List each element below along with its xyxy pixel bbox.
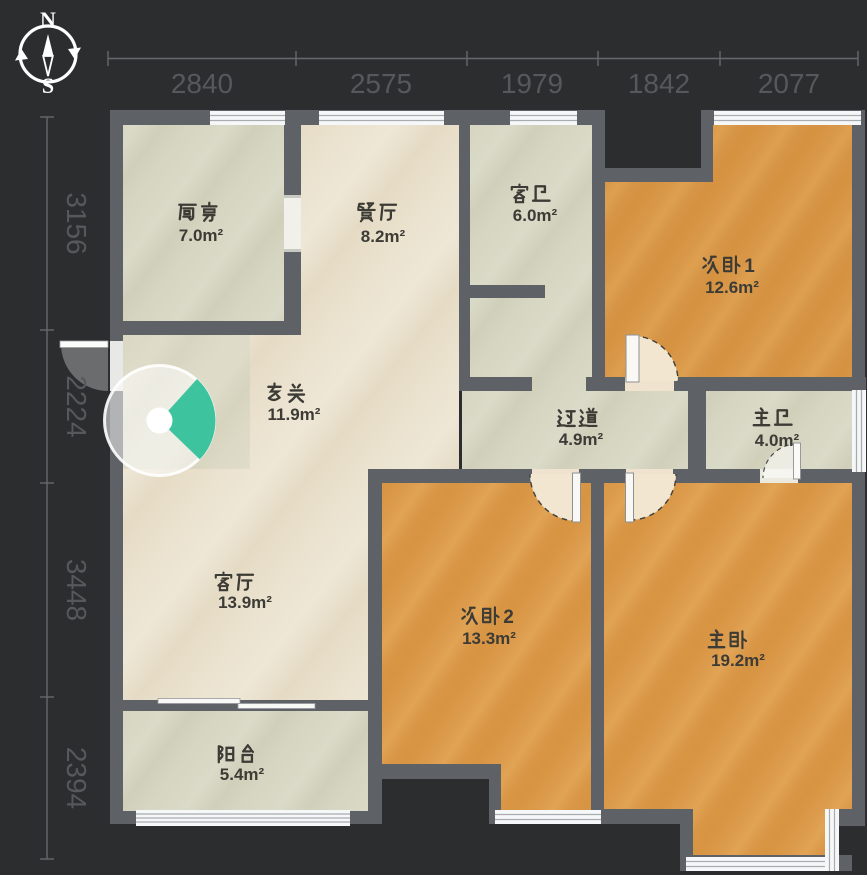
svg-text:13.3m²: 13.3m² — [462, 629, 516, 648]
svg-text:13.9m²: 13.9m² — [218, 593, 272, 612]
svg-text:7.0m²: 7.0m² — [179, 226, 224, 245]
svg-text:2: 2 — [503, 607, 514, 628]
svg-text:2077: 2077 — [758, 68, 820, 99]
svg-text:8.2m²: 8.2m² — [361, 227, 406, 246]
svg-text:2224: 2224 — [61, 375, 92, 437]
svg-text:1: 1 — [744, 256, 755, 277]
svg-text:6.0m²: 6.0m² — [513, 206, 558, 225]
svg-text:4.0m²: 4.0m² — [755, 431, 800, 450]
svg-text:3156: 3156 — [61, 192, 92, 254]
svg-text:2575: 2575 — [350, 68, 412, 99]
svg-text:1979: 1979 — [501, 68, 563, 99]
svg-text:S: S — [42, 73, 54, 98]
svg-text:4.9m²: 4.9m² — [559, 430, 604, 449]
svg-text:2840: 2840 — [171, 68, 233, 99]
svg-text:19.2m²: 19.2m² — [711, 651, 765, 670]
svg-text:5.4m²: 5.4m² — [220, 765, 265, 784]
svg-text:1842: 1842 — [628, 68, 690, 99]
svg-text:N: N — [40, 7, 56, 32]
svg-text:12.6m²: 12.6m² — [705, 278, 759, 297]
svg-text:11.9m²: 11.9m² — [268, 405, 321, 424]
svg-text:2394: 2394 — [61, 747, 92, 809]
svg-text:3448: 3448 — [61, 559, 92, 621]
